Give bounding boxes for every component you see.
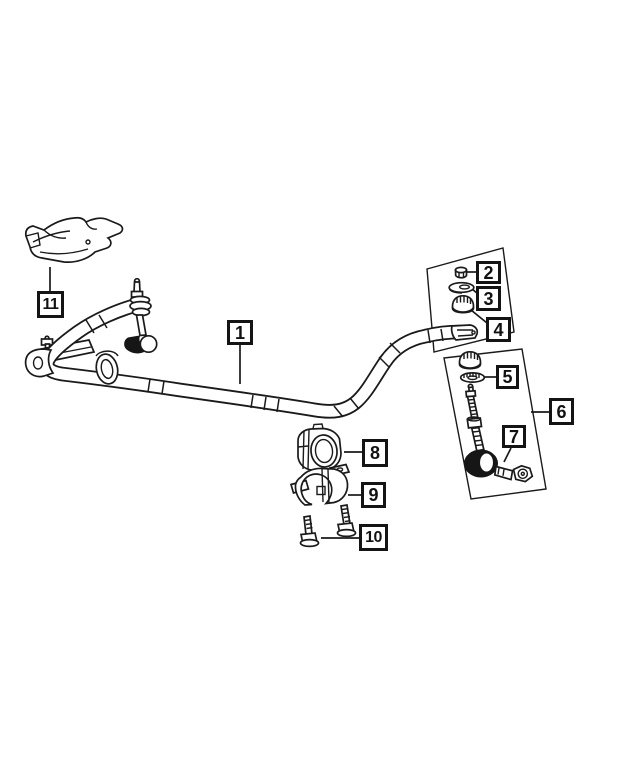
skid-plate-drawing (26, 218, 123, 262)
callout-5[interactable]: 5 (496, 365, 519, 389)
lower-washer-drawing (461, 373, 485, 382)
link-nut-drawing (456, 267, 467, 277)
bolt-drawing-left (301, 516, 319, 546)
bushing-drawing (298, 424, 341, 470)
callout-7[interactable]: 7 (502, 425, 526, 448)
leader-4 (471, 310, 487, 323)
parts-diagram-canvas (0, 0, 640, 777)
stabilizer-link-installed-drawing (125, 279, 157, 353)
lower-grommet-drawing (460, 352, 481, 369)
callout-6[interactable]: 6 (549, 398, 574, 425)
parts-diagram: 1 2 3 4 5 6 7 8 9 10 11 (0, 0, 640, 777)
clamp-bracket-drawing (291, 465, 349, 506)
callout-1[interactable]: 1 (227, 320, 253, 345)
callout-8[interactable]: 8 (362, 439, 388, 467)
grommet-drawing (453, 296, 474, 313)
callout-2[interactable]: 2 (476, 261, 501, 284)
callout-3[interactable]: 3 (476, 286, 501, 311)
callout-10[interactable]: 10 (359, 524, 388, 551)
callout-9[interactable]: 9 (361, 482, 386, 508)
retainer-washer-drawing (449, 283, 474, 293)
bolt-drawing-right (338, 505, 356, 536)
callout-11[interactable]: 11 (37, 291, 64, 318)
callout-4[interactable]: 4 (486, 317, 511, 342)
leader-7 (504, 448, 511, 462)
